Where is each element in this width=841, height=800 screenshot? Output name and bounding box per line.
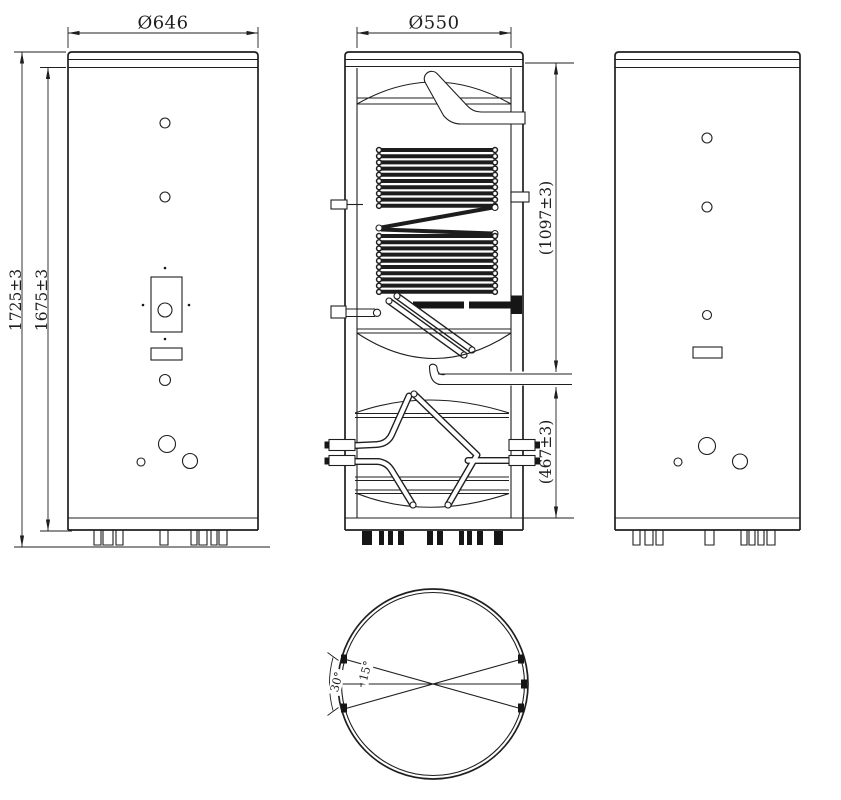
internal-pipe: [414, 394, 477, 505]
coil-crossover: [381, 208, 493, 228]
label-plate: [693, 347, 722, 358]
pipe-end-cap: [411, 391, 417, 397]
front-view: Ø646 1725±3 1675±3: [7, 13, 270, 548]
sensor-pocket-hole: [160, 375, 171, 386]
port-mark: [341, 655, 347, 664]
drawing-page: Ø646 1725±3 1675±3: [0, 0, 841, 800]
coil-crossover: [381, 230, 493, 234]
connection-hole: [699, 438, 716, 455]
upper-section-label: (1097±3): [537, 181, 555, 255]
coil-end-ring: [376, 225, 382, 231]
sensor-pocket-hole: [703, 311, 712, 320]
connection-hole: [183, 454, 198, 469]
panel-screw-dot: [164, 338, 167, 341]
body-height-label: 1675±3: [33, 269, 51, 331]
lower-vessel-bottom-dome: [357, 494, 509, 508]
port-mark: [518, 704, 524, 713]
sensor-pocket-hole: [160, 192, 170, 202]
pipe-end-cap: [410, 502, 416, 508]
panel-screw-dot: [164, 267, 167, 270]
drain-elbow-cap: [430, 364, 438, 367]
pipe-end-cap: [445, 502, 451, 508]
tank-feet: [633, 530, 775, 545]
label-plate: [151, 348, 182, 360]
internal-pipe: [356, 396, 409, 446]
port-left: [329, 440, 355, 451]
bottom-view: 30° 15°: [326, 589, 528, 779]
connection-hole: [159, 436, 176, 453]
control-panel: [151, 277, 182, 332]
connection-hole: [137, 458, 145, 466]
arc-tick: [328, 708, 339, 716]
port-mark: [341, 704, 347, 713]
tank-feet: [94, 530, 227, 545]
electric-heater-element: [469, 302, 512, 309]
heating-coil-lower: [381, 236, 493, 292]
angle-span-label-group: 30°: [326, 668, 346, 697]
port-nub: [325, 458, 330, 465]
front-diameter-label: Ø646: [137, 13, 188, 34]
sensor-pocket-hole: [160, 118, 170, 128]
internal-pipe: [356, 462, 413, 506]
drain-elbow: [430, 366, 442, 385]
lower-section-label: (467±3): [537, 420, 555, 485]
sensor-pocket-hole: [702, 202, 712, 212]
sensor-tube: [389, 301, 464, 355]
connection-hole: [733, 454, 748, 469]
arc-tick: [328, 653, 339, 661]
connection-hole: [674, 458, 682, 466]
port-right: [509, 440, 535, 451]
side-view: [615, 52, 800, 545]
tank-technical-drawing: Ø646 1725±3 1675±3: [0, 0, 841, 800]
panel-screw-dot: [142, 304, 145, 307]
coil-port-left: [331, 200, 347, 209]
coil-port-left-lower: [331, 306, 346, 318]
port-mark: [521, 680, 527, 689]
sensor-pocket-hole: [702, 133, 712, 143]
panel-screw-dot: [188, 304, 191, 307]
section-diameter-label: Ø550: [408, 13, 459, 34]
port-left: [329, 456, 355, 466]
port-nub: [325, 442, 330, 449]
internal-pipe: [356, 462, 413, 506]
port-mark: [518, 655, 524, 664]
heating-coil-upper: [381, 150, 493, 206]
heater-flange: [511, 296, 522, 315]
control-panel-dial: [158, 303, 172, 317]
overall-height-label: 1725±3: [7, 269, 25, 331]
coil-end-ring: [492, 205, 498, 211]
port-right: [509, 456, 535, 466]
angle-half-label-group: 15°: [355, 657, 375, 686]
section-view: Ø550 (1097±3) (467±3): [325, 13, 575, 546]
electric-heater-element: [413, 302, 464, 309]
coil-port-right: [511, 192, 529, 202]
tube-end-cap: [394, 293, 400, 299]
tube-end-cap: [386, 298, 392, 304]
section-feet: [362, 531, 503, 545]
pipe-end-cap: [373, 309, 380, 316]
